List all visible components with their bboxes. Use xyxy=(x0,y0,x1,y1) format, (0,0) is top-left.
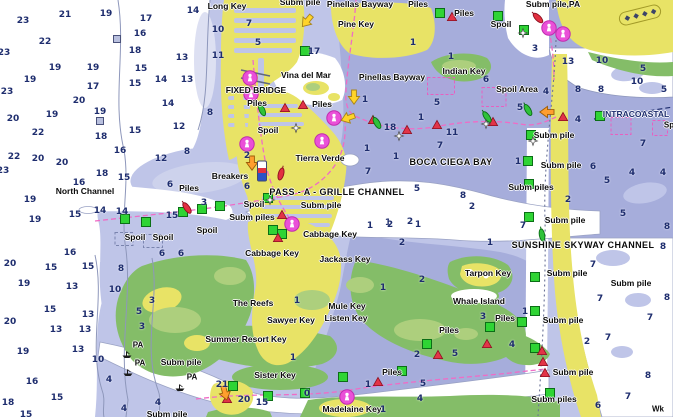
redtri-symbol[interactable] xyxy=(540,368,549,376)
wreck-symbol[interactable] xyxy=(124,370,133,377)
dashrect-m-symbol[interactable] xyxy=(428,78,455,95)
redtri-symbol[interactable] xyxy=(447,12,456,20)
wreck-symbol[interactable] xyxy=(176,385,185,392)
greensq-symbol[interactable] xyxy=(269,226,278,235)
dashrect-m-symbol[interactable] xyxy=(482,88,506,107)
greensq-symbol[interactable] xyxy=(301,47,310,56)
greensq-symbol[interactable] xyxy=(518,318,527,327)
orangearrow-symbol[interactable] xyxy=(246,156,257,170)
greensq-symbol[interactable] xyxy=(398,367,407,376)
greensq-symbol[interactable] xyxy=(525,213,534,222)
greensq-symbol[interactable] xyxy=(525,180,534,189)
redbuoy-symbol[interactable] xyxy=(530,10,544,24)
redtri-symbol[interactable] xyxy=(432,120,441,128)
light-symbol[interactable] xyxy=(340,390,354,404)
redtri-symbol[interactable] xyxy=(558,112,567,120)
greensq-symbol[interactable] xyxy=(198,205,207,214)
greensq-symbol[interactable] xyxy=(264,392,273,401)
light-symbol[interactable] xyxy=(315,134,329,148)
greenbuoy-symbol[interactable] xyxy=(256,101,267,117)
greenbuoy-symbol[interactable] xyxy=(521,101,533,116)
dashrect-m-symbol[interactable] xyxy=(653,121,668,136)
greensq-symbol[interactable] xyxy=(527,131,536,140)
greensq-symbol[interactable] xyxy=(436,9,445,18)
nautical-chart-view[interactable]: Long KeySubm pilePinellas BaywayPilesPil… xyxy=(0,0,673,417)
redtri-symbol[interactable] xyxy=(373,377,382,385)
graysq-symbol[interactable] xyxy=(114,36,121,43)
greensq-symbol[interactable] xyxy=(524,157,533,166)
graysq-symbol[interactable] xyxy=(97,118,104,125)
greensq-symbol[interactable] xyxy=(121,215,130,224)
greensq-symbol[interactable] xyxy=(546,389,555,398)
greensq-symbol[interactable] xyxy=(486,323,495,332)
greensq-symbol[interactable] xyxy=(229,382,238,391)
greensq-symbol[interactable] xyxy=(531,273,540,282)
redtri-symbol[interactable] xyxy=(433,350,442,358)
star-symbol[interactable] xyxy=(292,124,301,133)
specialbuoy-symbol[interactable] xyxy=(258,161,267,181)
greensq-symbol[interactable] xyxy=(142,218,151,227)
greensq-symbol[interactable] xyxy=(339,373,348,382)
dashrect-m-symbol[interactable] xyxy=(611,118,631,135)
redtri-symbol[interactable] xyxy=(277,210,286,218)
greensq-symbol[interactable] xyxy=(596,112,605,121)
greensq-symbol[interactable] xyxy=(301,389,310,398)
dashrect-g-symbol[interactable] xyxy=(144,235,163,248)
symbols-layer xyxy=(0,0,673,417)
light-symbol[interactable] xyxy=(244,87,258,101)
greensq-symbol[interactable] xyxy=(216,202,225,211)
redtri-symbol[interactable] xyxy=(298,100,307,108)
light-symbol[interactable] xyxy=(327,111,341,125)
orangearrow-symbol[interactable] xyxy=(540,106,554,117)
star-symbol[interactable] xyxy=(395,132,404,141)
greenbuoy-symbol[interactable] xyxy=(538,226,546,241)
redtri-symbol[interactable] xyxy=(280,103,289,111)
light-symbol[interactable] xyxy=(542,21,556,35)
redtri-symbol[interactable] xyxy=(538,357,547,365)
greensq-symbol[interactable] xyxy=(494,12,503,21)
yellowarrow-symbol[interactable] xyxy=(298,12,316,30)
dashrect-g-symbol[interactable] xyxy=(115,233,133,246)
yellowarrow-symbol[interactable] xyxy=(348,90,359,104)
greensq-symbol[interactable] xyxy=(423,340,432,349)
wreck-symbol[interactable] xyxy=(123,352,132,359)
greensq-symbol[interactable] xyxy=(531,344,540,353)
redbuoy-symbol[interactable] xyxy=(277,165,286,181)
light-symbol[interactable] xyxy=(556,27,570,41)
redtri-symbol[interactable] xyxy=(482,339,491,347)
light-symbol[interactable] xyxy=(243,71,257,85)
yellowarrow-symbol[interactable] xyxy=(339,110,356,125)
greensq-symbol[interactable] xyxy=(531,307,540,316)
pilesoval-symbol[interactable] xyxy=(618,4,662,27)
light-symbol[interactable] xyxy=(240,137,254,151)
redtri-symbol[interactable] xyxy=(402,125,411,133)
